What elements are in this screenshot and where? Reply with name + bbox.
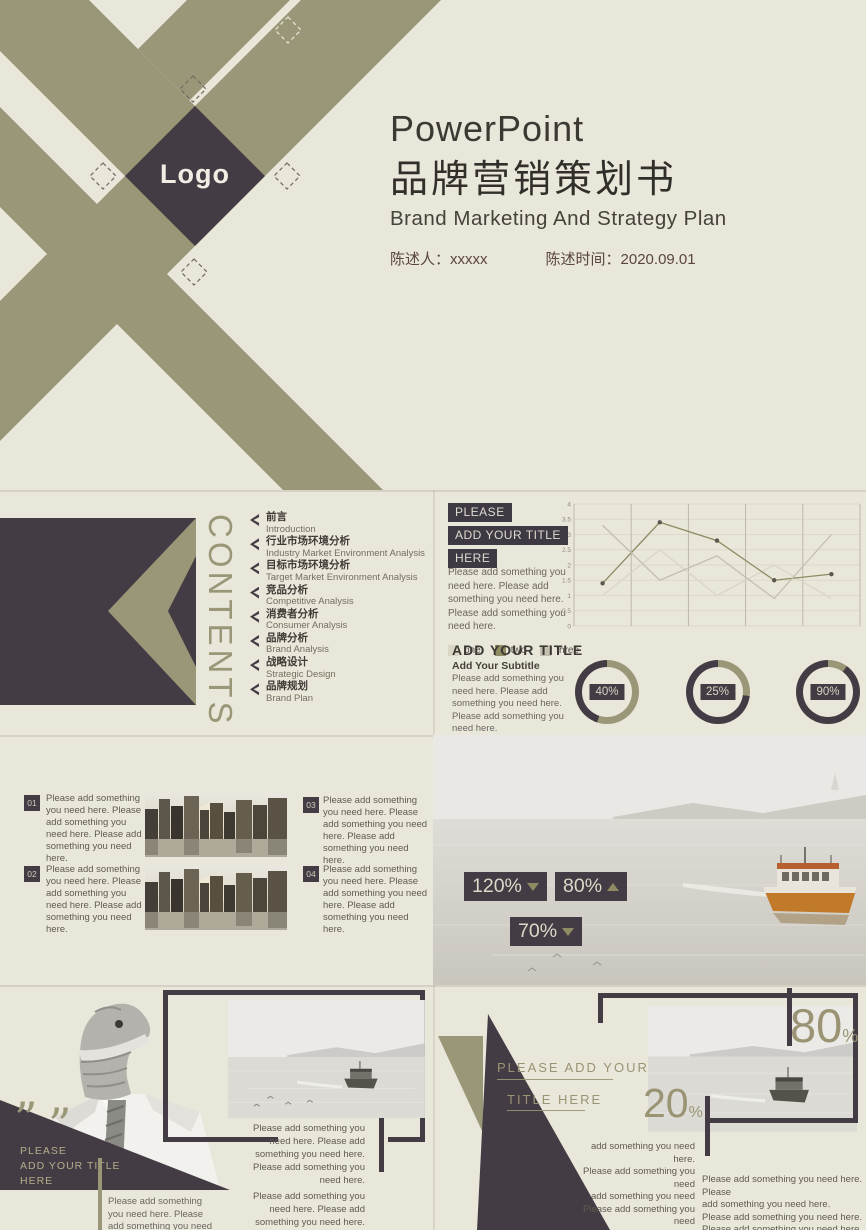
svg-text:2.5: 2.5 [562,547,571,554]
contents-chevron-graphic [0,518,196,705]
contents-item: 品牌分析Brand Analysis [250,633,433,657]
date-field: 陈述时间：2020.09.01 [546,248,696,269]
rule-mid-vertical [705,1096,710,1156]
svg-text:3.5: 3.5 [562,517,571,524]
chevron-left-icon [250,562,259,574]
slide-numbered-list: 01 Please add something you need here. P… [0,735,433,985]
chevron-left-icon [250,514,259,526]
slide-boat-photo: PLEASE ADD YOUR TITLE HERE Please add so… [433,735,866,985]
title-chip: ADD YOUR TITLE [448,526,568,545]
frame-caption-paragraph: Please add something you need here. Plea… [233,1190,365,1230]
presenter-field: 陈述人：xxxxx [390,248,488,269]
slide-quote: ” [0,985,433,1230]
percent-title-line1: PLEASE ADD YOUR [497,1060,649,1075]
chevron-left-icon [250,538,259,550]
svg-text:2: 2 [567,562,571,569]
item-number-badge: 02 [24,866,40,882]
item-number-badge: 03 [303,797,319,813]
contents-item-zh: 行业市场环境分析 [266,536,425,548]
donut-charts: 40%25%90% [575,660,860,724]
contents-item: 前言Introduction [250,512,433,536]
cover-title-en: PowerPoint [390,108,584,150]
olive-divider-line [98,1158,102,1230]
chevron-left-icon [250,587,259,599]
dashed-diamond-west [90,163,116,189]
contents-item-en: Introduction [266,524,316,535]
donut-chart: 90% [796,660,860,724]
contents-item-en: Target Market Environment Analysis [266,572,418,583]
title-chip: PLEASE [448,503,512,522]
donut-value-label: 90% [810,684,845,700]
cover-title-zh: 品牌营销策划书 [390,148,677,203]
contents-item-en: Strategic Design [266,669,336,680]
chevron-left-icon [250,611,259,623]
svg-text:1.5: 1.5 [562,578,571,585]
dashed-diamond-east [274,163,300,189]
item-number-badge: 04 [303,866,319,882]
stat-chip-120: 120% [464,872,547,901]
percent-left-text: add something you need here. Please add … [578,1141,695,1230]
donut-chart: 25% [686,660,750,724]
percent-title-line2: TITLE HERE [507,1092,602,1107]
contents-list: 前言Introduction行业市场环境分析Industry Market En… [250,512,433,706]
contents-item-zh: 竞品分析 [266,585,354,597]
contents-item-en: Brand Plan [266,693,313,704]
chart-title-chips: PLEASE ADD YOUR TITLE HERE [448,503,568,568]
contents-item-zh: 前言 [266,512,316,524]
framed-sea-photo [228,1000,425,1118]
stat-80-percent: 80% [790,998,858,1053]
rule-top-tick [598,993,603,1023]
frame-top [163,990,425,995]
line-chart: 00.511.522.533.54 [558,498,864,636]
quote-title: PLEASE ADD YOUR TITLE HERE [20,1144,121,1189]
contents-item: 目标市场环境分析Target Market Environment Analys… [250,560,433,584]
triangle-down-icon [527,883,539,891]
contents-item: 行业市场环境分析Industry Market Environment Anal… [250,536,433,560]
city-photo-1 [145,793,287,857]
stat-chip-70: 70% [510,917,582,946]
svg-text:0: 0 [567,623,571,630]
triangle-down-icon [562,928,574,936]
title-underline [497,1079,613,1080]
svg-text:0.5: 0.5 [562,608,571,615]
stat-20-percent: 20% [643,1080,703,1127]
contents-item-zh: 品牌规划 [266,681,313,693]
triangle-up-icon [607,883,619,891]
cover-subtitle: Brand Marketing And Strategy Plan [390,207,727,231]
donut-section-subtitle: Add Your Subtitle [452,660,540,672]
slide-cover: Logo PowerPoint 品牌营销策划书 Brand Marketing … [0,0,866,490]
template-preview-page: Logo PowerPoint 品牌营销策划书 Brand Marketing … [0,0,866,1230]
chevron-left-icon [250,635,259,647]
sea-photo-color [433,735,866,985]
list-item-text: Please add something you need here. Plea… [323,795,428,867]
title-underline [507,1110,585,1111]
contents-item: 消费者分析Consumer Analysis [250,609,433,633]
city-photo-2 [145,866,287,930]
list-item-text: Please add something you need here. Plea… [323,864,428,936]
svg-text:4: 4 [567,501,571,508]
chart-body-text: Please add something you need here. Plea… [448,566,566,634]
frame-bottom-right [388,1137,425,1142]
contents-item-zh: 战略设计 [266,657,336,669]
item-number-badge: 01 [24,795,40,811]
argyle-x-graphic [0,0,866,490]
contents-item: 战略设计Strategic Design [250,657,433,681]
donut-section-body: Please add something you need here. Plea… [452,673,574,736]
contents-item: 品牌规划Brand Plan [250,681,433,705]
contents-item: 竞品分析Competitive Analysis [250,585,433,609]
contents-vertical-label: CONTENTS [198,514,242,708]
contents-item-zh: 消费者分析 [266,609,347,621]
chevron-left-icon [250,659,259,671]
cover-presenter-row: 陈述人：xxxxx 陈述时间：2020.09.01 [390,248,696,269]
contents-item-en: Competitive Analysis [266,596,354,607]
dashed-diamond-south [181,259,207,285]
svg-text:3: 3 [567,532,571,539]
frame-caption-paragraph: Please add something you need here. Plea… [233,1122,365,1187]
quote-icon: ” [14,1092,38,1146]
list-item-text: Please add something you need here. Plea… [46,864,143,936]
donut-section-title: ADD YOUR TITLE [452,642,583,658]
olive-triangle [438,1036,483,1133]
list-item-text: Please add something you need here. Plea… [46,793,143,865]
contents-item-en: Brand Analysis [266,644,329,655]
percent-right-text: Please add something you need here. Plea… [702,1174,864,1230]
contents-item-en: Consumer Analysis [266,620,347,631]
donut-chart: 40% [575,660,639,724]
quote-caption: Please add something you need here. Plea… [108,1196,214,1230]
logo-text: Logo [125,159,265,190]
rule-bottom-horizontal [705,1118,858,1123]
donut-value-label: 25% [700,684,735,700]
stat-chip-80: 80% [555,872,627,901]
contents-item-zh: 目标市场环境分析 [266,560,418,572]
contents-item-zh: 品牌分析 [266,633,329,645]
chevron-left-icon [250,683,259,695]
donut-value-label: 40% [589,684,624,700]
svg-text:1: 1 [567,593,571,600]
frame-caption: Please add something you need here. Plea… [233,1122,365,1230]
contents-item-en: Industry Market Environment Analysis [266,548,425,559]
